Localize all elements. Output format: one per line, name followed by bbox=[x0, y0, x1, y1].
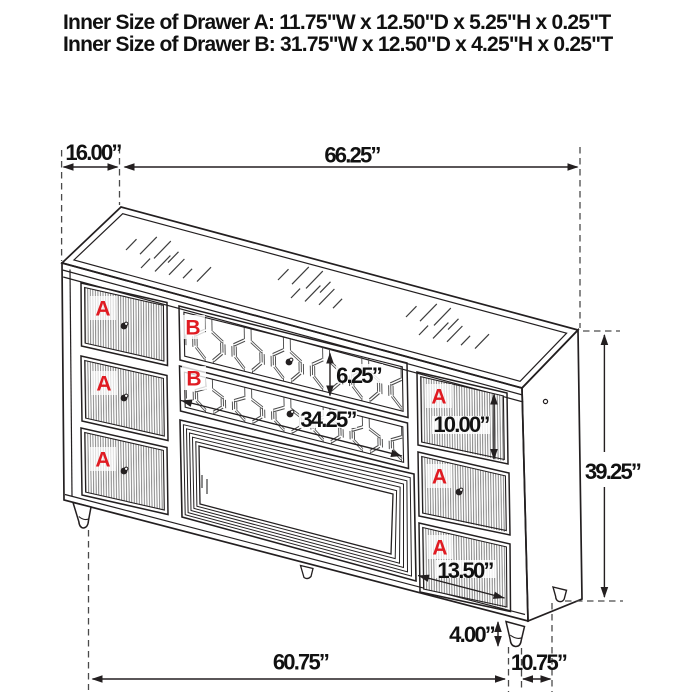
svg-text:16.00”: 16.00” bbox=[65, 140, 121, 165]
svg-text:34.25”: 34.25” bbox=[300, 407, 356, 432]
svg-text:39.25”: 39.25” bbox=[585, 459, 641, 484]
svg-text:A: A bbox=[431, 386, 446, 409]
svg-text:Inner Size of Drawer B: 31.75": Inner Size of Drawer B: 31.75"W x 12.50"… bbox=[63, 33, 613, 56]
svg-text:4.00”: 4.00” bbox=[449, 622, 495, 647]
svg-text:A: A bbox=[96, 373, 111, 396]
svg-text:A: A bbox=[95, 449, 110, 472]
svg-text:66.25”: 66.25” bbox=[324, 143, 380, 168]
svg-text:6.25”: 6.25” bbox=[336, 363, 382, 388]
svg-text:10.00”: 10.00” bbox=[433, 412, 489, 437]
svg-text:13.50”: 13.50” bbox=[437, 558, 493, 583]
svg-text:Inner Size of Drawer A: 11.75": Inner Size of Drawer A: 11.75"W x 12.50"… bbox=[63, 11, 611, 34]
svg-text:B: B bbox=[186, 368, 201, 391]
svg-text:A: A bbox=[432, 466, 447, 489]
svg-text:60.75”: 60.75” bbox=[273, 650, 329, 675]
svg-text:A: A bbox=[432, 537, 447, 560]
svg-text:10.75”: 10.75” bbox=[511, 650, 567, 675]
svg-text:B: B bbox=[185, 317, 200, 340]
svg-text:A: A bbox=[95, 298, 110, 321]
